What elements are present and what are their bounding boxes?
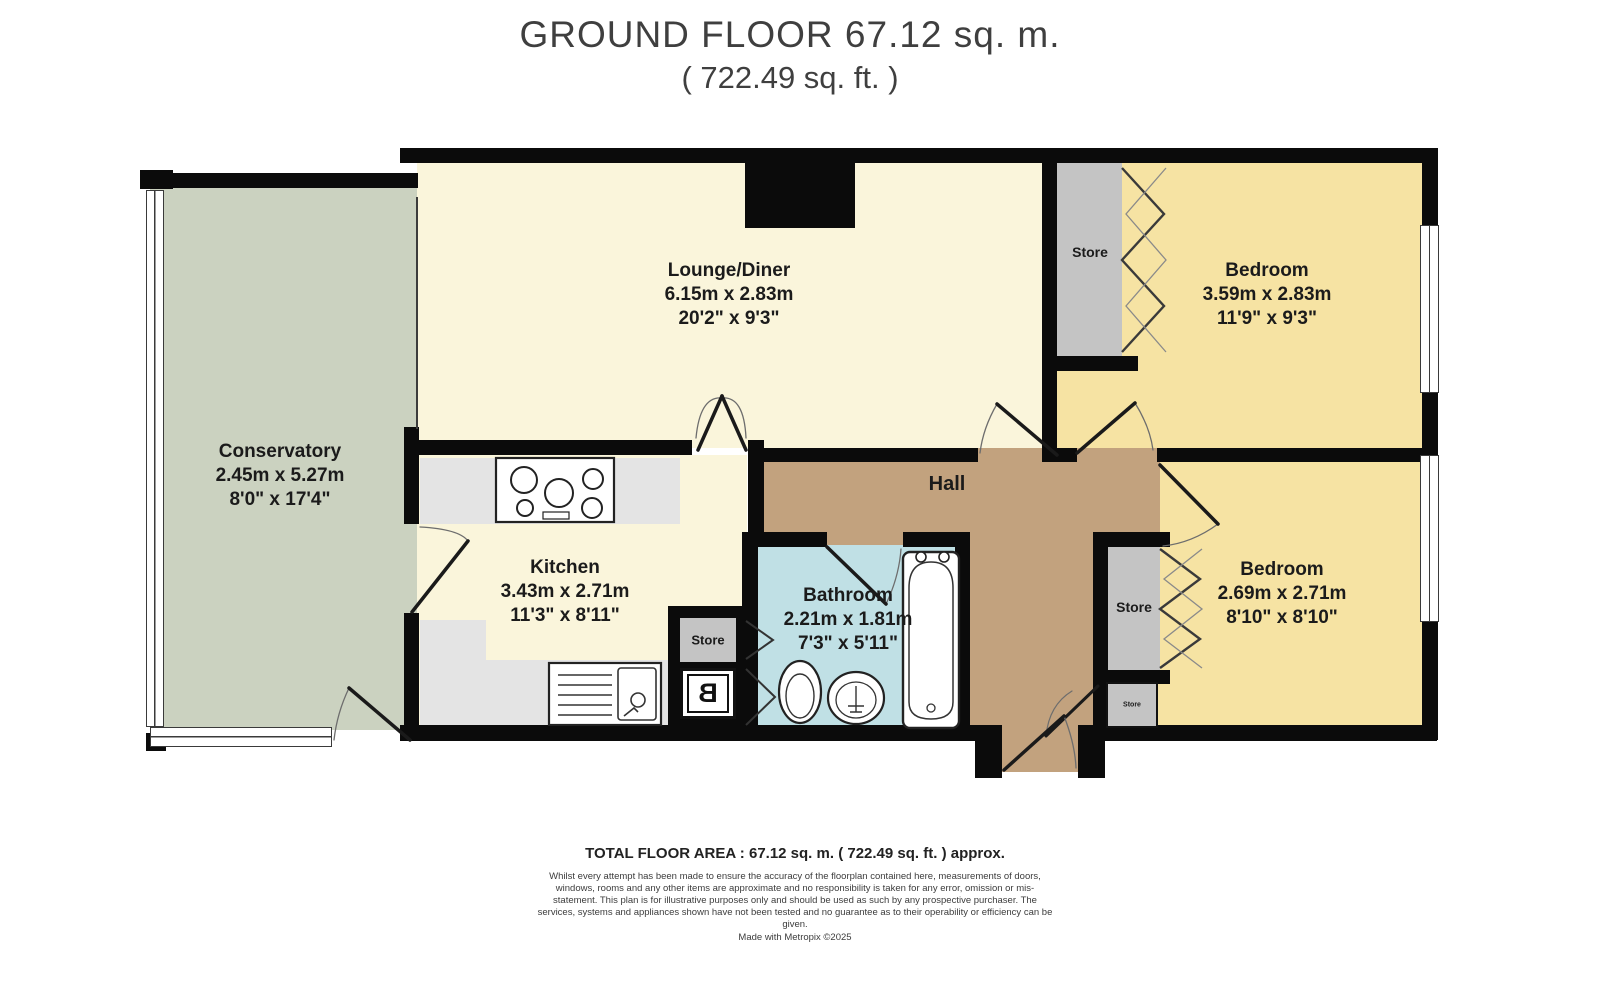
label-store-kitchen: Store	[691, 633, 724, 648]
room-dims-imperial: 8'0" x 17'4"	[216, 488, 345, 512]
label-bedroom-bottom: Bedroom 2.69m x 2.71m 8'10" x 8'10"	[1218, 558, 1347, 630]
credit-text: Made with Metropix ©2025	[537, 932, 1053, 943]
label-bathroom: Bathroom 2.21m x 1.81m 7'3" x 5'11"	[784, 584, 913, 656]
room-name: Conservatory	[216, 440, 345, 464]
label-store-mid: Store	[1116, 599, 1152, 615]
label-store-top: Store	[1072, 244, 1108, 260]
room-dims-imperial: 11'9" x 9'3"	[1203, 307, 1332, 331]
room-dims-metric: 3.59m x 2.83m	[1203, 283, 1332, 307]
room-name: Bedroom	[1218, 558, 1347, 582]
floorplan-drawing: B	[0, 0, 1600, 988]
room-dims-metric: 2.21m x 1.81m	[784, 608, 913, 632]
label-store-small: Store	[1123, 702, 1141, 709]
label-conservatory: Conservatory 2.45m x 5.27m 8'0" x 17'4"	[216, 440, 345, 512]
plan-footer: TOTAL FLOOR AREA : 67.12 sq. m. ( 722.49…	[537, 845, 1053, 943]
toilet-icon	[779, 661, 821, 723]
room-dims-metric: 2.45m x 5.27m	[216, 464, 345, 488]
sink-icon	[549, 663, 661, 725]
label-kitchen: Kitchen 3.43m x 2.71m 11'3" x 8'11"	[501, 556, 630, 628]
room-name: Bathroom	[784, 584, 913, 608]
hob-icon	[496, 458, 614, 522]
room-dims-imperial: 8'10" x 8'10"	[1218, 606, 1347, 630]
total-floor-area: TOTAL FLOOR AREA : 67.12 sq. m. ( 722.49…	[537, 845, 1053, 862]
floorplan-page: GROUND FLOOR 67.12 sq. m. ( 722.49 sq. f…	[0, 0, 1600, 988]
label-lounge-diner: Lounge/Diner 6.15m x 2.83m 20'2" x 9'3"	[665, 259, 794, 331]
label-bedroom-top: Bedroom 3.59m x 2.83m 11'9" x 9'3"	[1203, 259, 1332, 331]
disclaimer-text: Whilst every attempt has been made to en…	[537, 871, 1053, 931]
room-dims-metric: 6.15m x 2.83m	[665, 283, 794, 307]
room-name: Lounge/Diner	[665, 259, 794, 283]
room-dims-imperial: 20'2" x 9'3"	[665, 307, 794, 331]
basin-icon	[828, 672, 884, 724]
label-hall: Hall	[929, 472, 966, 496]
room-name: Bedroom	[1203, 259, 1332, 283]
room-dims-metric: 2.69m x 2.71m	[1218, 582, 1347, 606]
room-name: Hall	[929, 472, 966, 496]
room-dims-metric: 3.43m x 2.71m	[501, 580, 630, 604]
room-dims-imperial: 11'3" x 8'11"	[501, 604, 630, 628]
door-swing-icons	[334, 396, 1218, 770]
room-name: Kitchen	[501, 556, 630, 580]
room-dims-imperial: 7'3" x 5'11"	[784, 632, 913, 656]
